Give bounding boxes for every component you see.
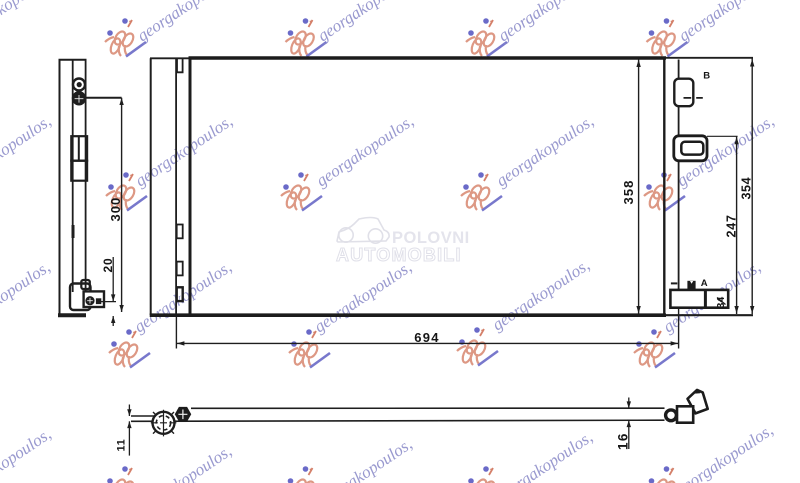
svg-text:34: 34 xyxy=(715,297,727,309)
svg-text:300: 300 xyxy=(108,197,123,222)
svg-text:354: 354 xyxy=(740,177,754,200)
svg-text:694: 694 xyxy=(414,330,440,345)
svg-text:247: 247 xyxy=(725,214,739,237)
svg-text:358: 358 xyxy=(621,180,636,205)
svg-text:B: B xyxy=(703,70,710,81)
svg-text:11: 11 xyxy=(116,439,128,452)
svg-text:20: 20 xyxy=(101,258,115,273)
svg-text:16: 16 xyxy=(616,432,631,450)
svg-text:A: A xyxy=(701,278,708,289)
